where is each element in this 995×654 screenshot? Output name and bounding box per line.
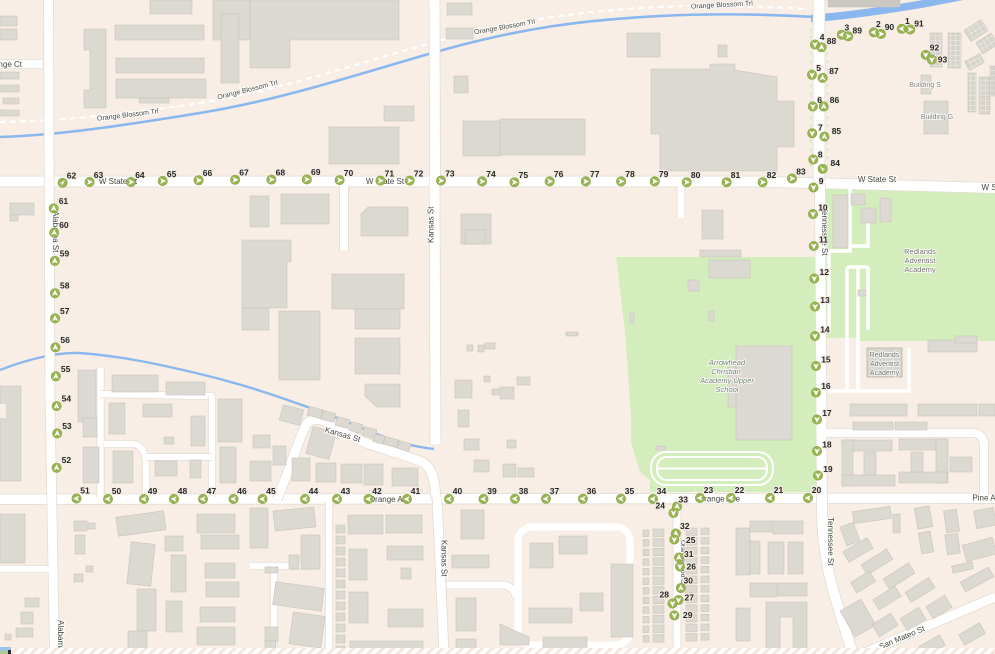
svg-text:71: 71 bbox=[385, 168, 395, 178]
svg-text:51: 51 bbox=[80, 486, 90, 496]
svg-text:Academy: Academy bbox=[904, 265, 936, 274]
svg-text:14: 14 bbox=[820, 324, 830, 334]
svg-text:62: 62 bbox=[67, 171, 77, 181]
svg-text:20: 20 bbox=[812, 485, 822, 495]
svg-text:69: 69 bbox=[311, 167, 321, 177]
svg-text:46: 46 bbox=[237, 486, 247, 496]
svg-text:93: 93 bbox=[938, 55, 948, 65]
svg-text:64: 64 bbox=[135, 170, 145, 180]
svg-text:Building G: Building G bbox=[921, 114, 953, 121]
svg-text:18: 18 bbox=[822, 439, 832, 449]
svg-text:21: 21 bbox=[774, 485, 784, 495]
svg-text:7: 7 bbox=[818, 123, 823, 133]
svg-text:15: 15 bbox=[821, 354, 831, 364]
svg-text:74: 74 bbox=[486, 169, 496, 179]
svg-text:4: 4 bbox=[820, 32, 825, 42]
svg-text:66: 66 bbox=[203, 168, 213, 178]
svg-text:27: 27 bbox=[685, 593, 695, 603]
svg-text:92: 92 bbox=[930, 43, 940, 53]
svg-text:30: 30 bbox=[684, 576, 694, 586]
svg-text:29: 29 bbox=[683, 610, 693, 620]
svg-text:76: 76 bbox=[554, 169, 564, 179]
svg-text:91: 91 bbox=[914, 19, 924, 29]
svg-text:48: 48 bbox=[178, 486, 188, 496]
svg-text:87: 87 bbox=[829, 66, 839, 76]
svg-text:45: 45 bbox=[266, 486, 276, 496]
svg-text:41: 41 bbox=[411, 486, 421, 496]
svg-text:73: 73 bbox=[445, 168, 455, 178]
svg-text:Tennessee St: Tennessee St bbox=[820, 207, 829, 256]
svg-text:31: 31 bbox=[684, 549, 694, 559]
svg-text:38: 38 bbox=[519, 486, 529, 496]
svg-text:36: 36 bbox=[587, 486, 597, 496]
svg-text:34: 34 bbox=[657, 486, 667, 496]
svg-text:22: 22 bbox=[735, 485, 745, 495]
svg-text:57: 57 bbox=[60, 306, 70, 316]
svg-text:Building S: Building S bbox=[909, 82, 941, 89]
svg-text:56: 56 bbox=[60, 335, 70, 345]
svg-text:W S: W S bbox=[981, 183, 995, 192]
svg-text:17: 17 bbox=[822, 408, 832, 418]
svg-text:Redlands: Redlands bbox=[870, 352, 900, 359]
svg-text:75: 75 bbox=[519, 170, 529, 180]
svg-text:60: 60 bbox=[59, 220, 69, 230]
svg-text:35: 35 bbox=[625, 486, 635, 496]
svg-text:9: 9 bbox=[819, 176, 824, 186]
svg-text:79: 79 bbox=[659, 169, 669, 179]
svg-text:84: 84 bbox=[831, 158, 841, 168]
svg-text:47: 47 bbox=[207, 486, 217, 496]
svg-text:77: 77 bbox=[590, 169, 600, 179]
svg-text:3: 3 bbox=[845, 23, 850, 33]
svg-text:89: 89 bbox=[853, 26, 863, 36]
svg-text:52: 52 bbox=[62, 455, 72, 465]
svg-text:Arrowhead: Arrowhead bbox=[708, 358, 746, 367]
svg-text:70: 70 bbox=[344, 168, 354, 178]
svg-text:49: 49 bbox=[148, 486, 158, 496]
svg-text:13: 13 bbox=[820, 295, 830, 305]
svg-text:5: 5 bbox=[816, 63, 821, 73]
svg-text:32: 32 bbox=[680, 521, 690, 531]
svg-text:53: 53 bbox=[62, 421, 72, 431]
svg-text:55: 55 bbox=[61, 364, 71, 374]
svg-text:11: 11 bbox=[819, 234, 828, 244]
svg-text:82: 82 bbox=[767, 170, 777, 180]
svg-text:1: 1 bbox=[905, 16, 910, 26]
svg-text:72: 72 bbox=[414, 168, 424, 178]
svg-text:W State St: W State St bbox=[858, 175, 897, 184]
svg-text:Academy Upper: Academy Upper bbox=[699, 376, 754, 385]
svg-text:44: 44 bbox=[309, 486, 319, 496]
svg-text:37: 37 bbox=[550, 486, 560, 496]
svg-text:23: 23 bbox=[704, 485, 714, 495]
svg-text:81: 81 bbox=[731, 170, 741, 180]
svg-text:86: 86 bbox=[830, 95, 840, 105]
svg-text:Tennessee St: Tennessee St bbox=[826, 517, 835, 566]
svg-text:80: 80 bbox=[691, 170, 701, 180]
svg-text:54: 54 bbox=[62, 394, 72, 404]
svg-text:16: 16 bbox=[821, 381, 831, 391]
svg-text:Adventist: Adventist bbox=[905, 256, 937, 265]
svg-text:Kansas St: Kansas St bbox=[427, 206, 436, 243]
svg-text:19: 19 bbox=[823, 464, 833, 474]
svg-text:Pine A: Pine A bbox=[972, 494, 995, 503]
svg-text:42: 42 bbox=[372, 486, 382, 496]
svg-text:10: 10 bbox=[818, 202, 828, 212]
svg-text:28: 28 bbox=[660, 590, 670, 600]
svg-text:Adventist: Adventist bbox=[870, 361, 899, 368]
svg-text:78: 78 bbox=[625, 169, 635, 179]
svg-text:83: 83 bbox=[796, 166, 806, 176]
svg-text:50: 50 bbox=[112, 486, 122, 496]
svg-text:68: 68 bbox=[276, 167, 286, 177]
svg-text:25: 25 bbox=[686, 535, 696, 545]
svg-text:Kansas St: Kansas St bbox=[440, 540, 449, 577]
svg-text:2: 2 bbox=[876, 19, 881, 29]
svg-text:26: 26 bbox=[687, 562, 697, 572]
svg-text:Orange Ct: Orange Ct bbox=[0, 60, 23, 69]
svg-text:Academy: Academy bbox=[870, 370, 900, 377]
svg-text:61: 61 bbox=[59, 196, 69, 206]
svg-text:39: 39 bbox=[487, 486, 497, 496]
svg-text:58: 58 bbox=[60, 281, 70, 291]
svg-text:65: 65 bbox=[167, 169, 177, 179]
svg-text:88: 88 bbox=[827, 36, 837, 46]
svg-text:40: 40 bbox=[453, 486, 463, 496]
svg-text:Redlands: Redlands bbox=[904, 247, 936, 256]
svg-text:59: 59 bbox=[60, 248, 70, 258]
svg-text:85: 85 bbox=[832, 126, 842, 136]
svg-text:63: 63 bbox=[94, 170, 104, 180]
svg-text:33: 33 bbox=[679, 495, 689, 505]
svg-text:Christian: Christian bbox=[711, 367, 741, 376]
svg-text:90: 90 bbox=[885, 22, 895, 32]
svg-text:43: 43 bbox=[341, 486, 351, 496]
svg-text:8: 8 bbox=[818, 150, 823, 160]
svg-text:School: School bbox=[716, 385, 739, 394]
svg-text:67: 67 bbox=[239, 168, 249, 178]
svg-text:24: 24 bbox=[656, 501, 666, 511]
svg-text:12: 12 bbox=[820, 267, 830, 277]
